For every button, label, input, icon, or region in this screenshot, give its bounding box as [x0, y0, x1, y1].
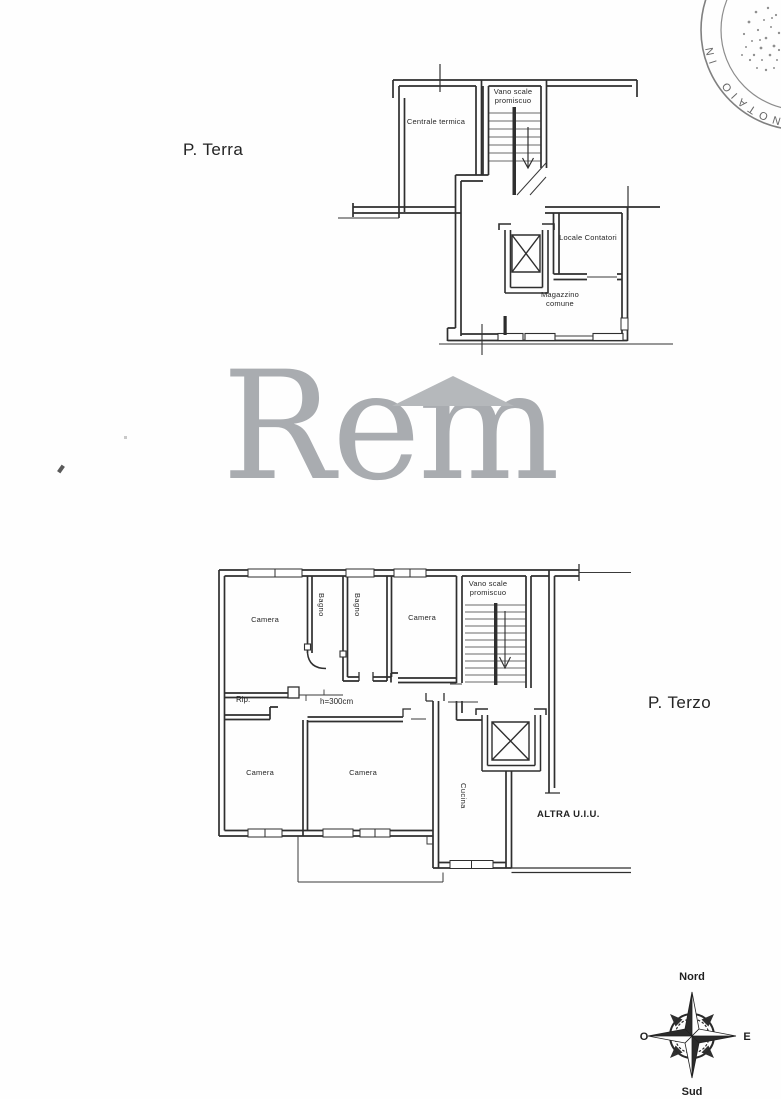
- compass-west-label: O: [640, 1031, 649, 1043]
- plan-terzo-title: P. Terzo: [648, 693, 711, 713]
- stairs-terra: [489, 107, 546, 195]
- plan-terra-title: P. Terra: [183, 140, 243, 160]
- label-height-note: h=300cm: [320, 697, 353, 706]
- label-camera-s: Camera: [338, 768, 388, 777]
- label-bagno-1: Bagno: [317, 593, 326, 645]
- label-camera-ne: Camera: [398, 613, 446, 622]
- scanned-floorplan-page: NOTAIO IN P. Terra: [0, 0, 781, 1099]
- compass-star: [648, 992, 736, 1078]
- label-camera-nw: Camera: [242, 615, 288, 624]
- label-locale-contatori: Locale Contatori: [556, 233, 620, 242]
- label-centrale-termica: Centrale termica: [406, 117, 466, 126]
- elevator-terzo: [476, 709, 546, 771]
- label-camera-sw: Camera: [236, 768, 284, 777]
- label-bagno-2: Bagno: [353, 593, 362, 645]
- compass-rose: Nord Sud O E: [632, 958, 762, 1098]
- compass-east-label: E: [743, 1031, 750, 1043]
- stairs-terzo: [465, 603, 526, 685]
- scan-speck: [124, 436, 127, 439]
- windows-terra: [498, 318, 628, 341]
- door-arc: [308, 653, 327, 669]
- label-rip: Rip.: [236, 695, 250, 704]
- compass-south-label: Sud: [682, 1086, 703, 1098]
- label-cucina: Cucina: [459, 783, 468, 833]
- label-vano-scale-terra: Vano scale promiscuo: [483, 87, 543, 106]
- label-vano-scale-terzo: Vano scale promiscuo: [464, 579, 512, 598]
- notary-stamp: NOTAIO IN: [686, 0, 781, 126]
- stamp-emblem-texture: [741, 7, 780, 71]
- compass-north-label: Nord: [679, 971, 705, 983]
- watermark-text: Rem: [222, 352, 557, 502]
- label-magazzino-comune: Magazzino comune: [527, 290, 593, 309]
- elevator-terra: [499, 224, 554, 293]
- scan-speck: [57, 465, 65, 474]
- label-altra-uiu: ALTRA U.I.U.: [537, 809, 600, 820]
- watermark-roof-icon: [392, 376, 514, 406]
- plan-terzo-drawing: [198, 553, 633, 898]
